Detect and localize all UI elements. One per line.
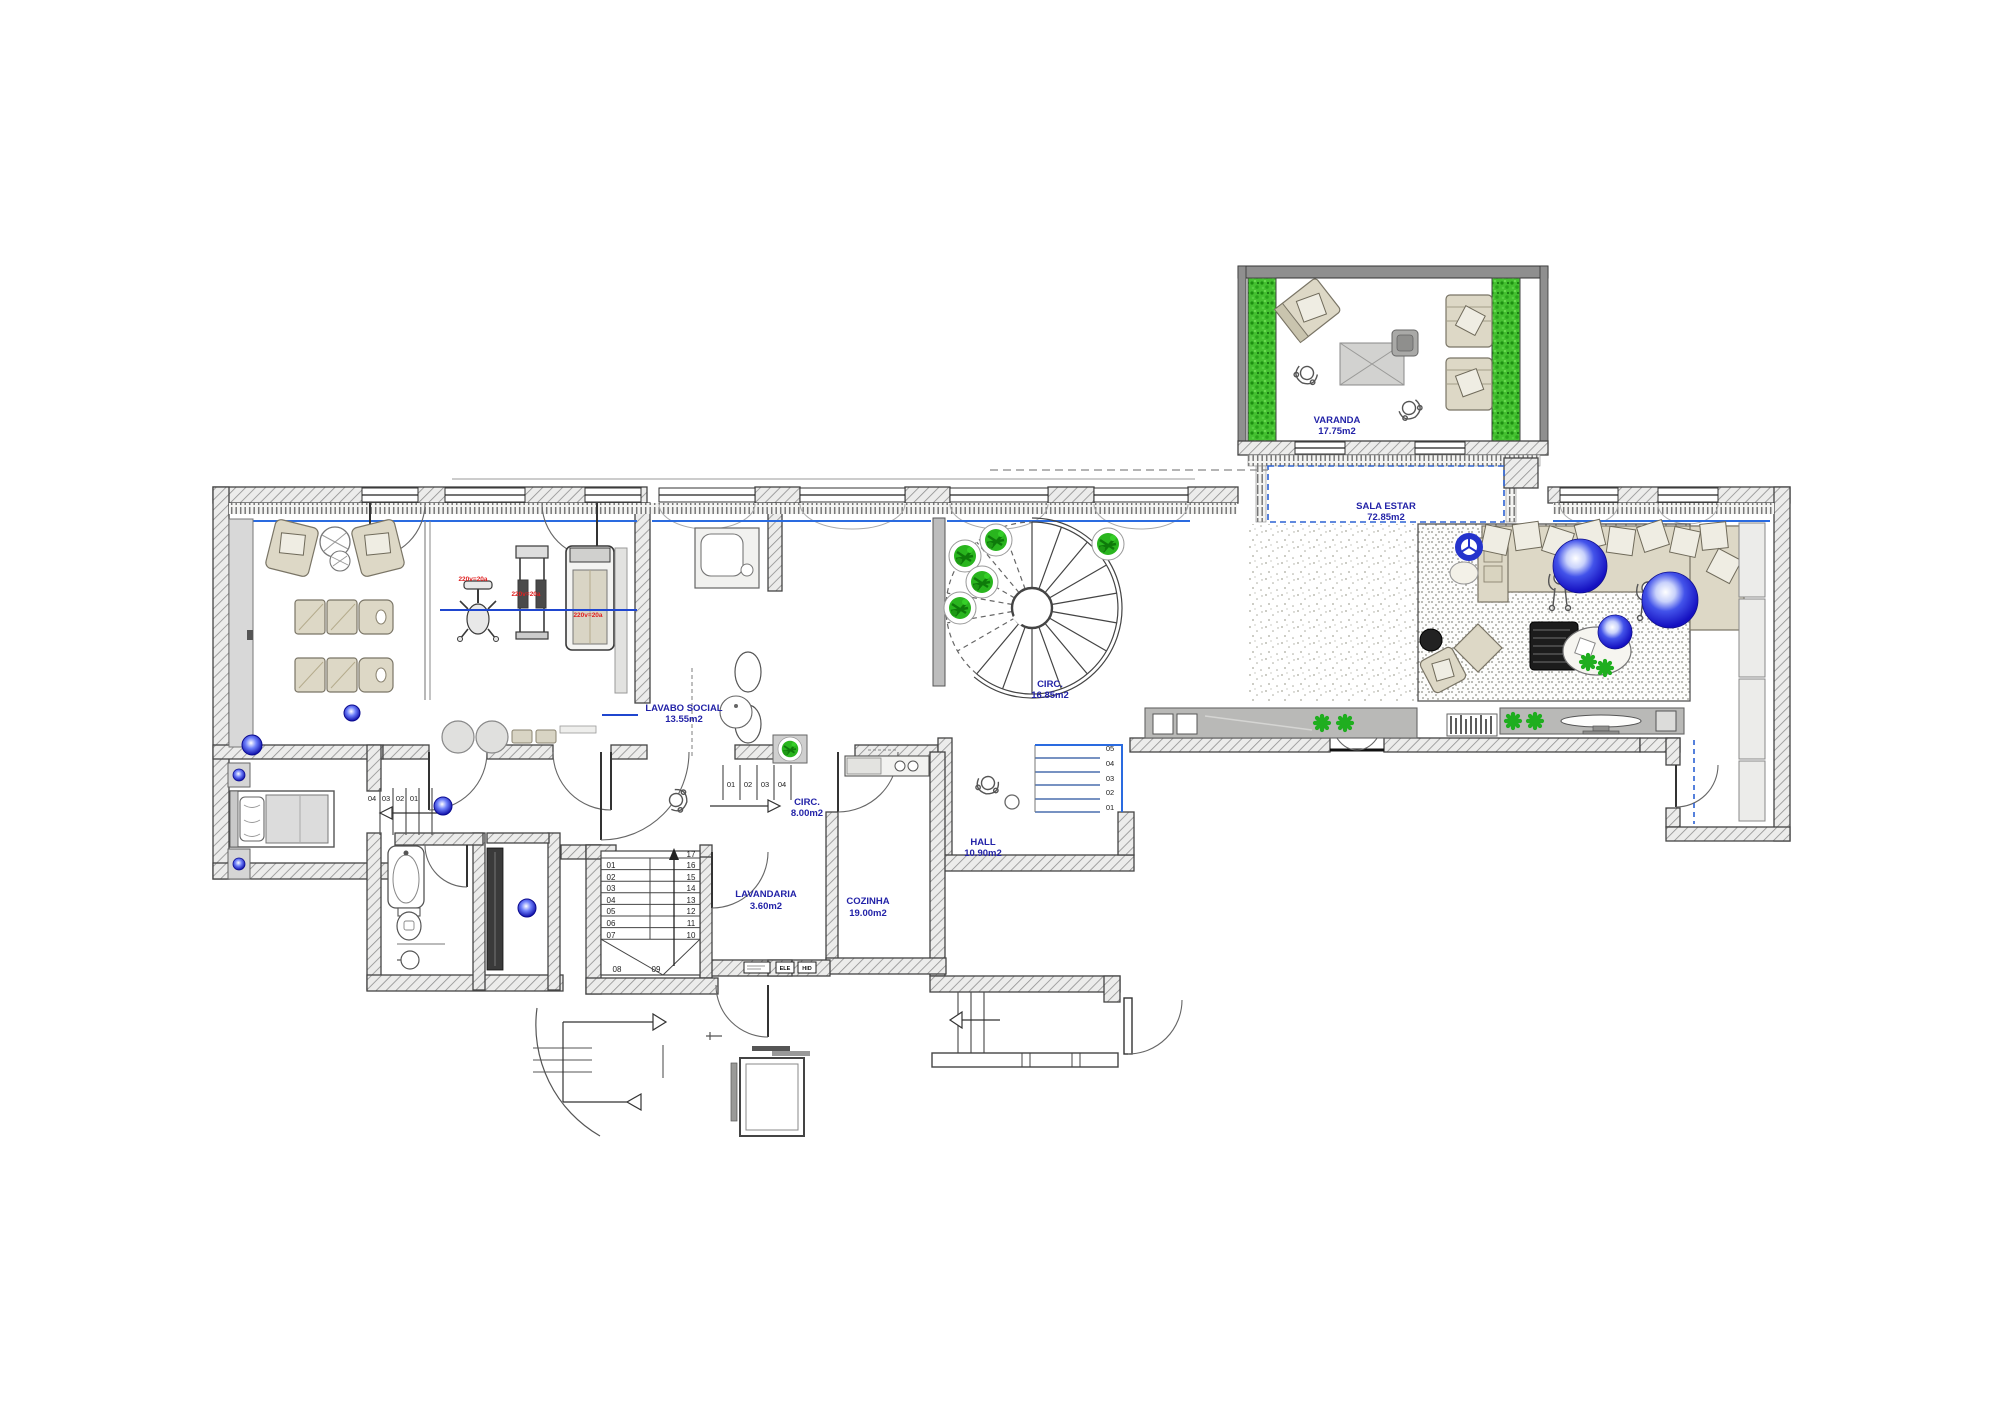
step-number: 14 — [687, 884, 696, 893]
step-number: 02 — [744, 780, 752, 789]
ceiling-light — [242, 735, 262, 755]
cabinet-handle — [247, 630, 253, 640]
curtain-band — [229, 503, 1237, 514]
blue-sphere — [1642, 572, 1698, 628]
basin-tap — [734, 704, 738, 708]
room-name: CIRC. — [794, 797, 820, 808]
floor-plan-canvas: VARANDA 17.75m2 SALA ESTAR 72.85m2 — [0, 0, 2000, 1414]
glazing-band — [1248, 455, 1540, 466]
cozinha-label: COZINHA 19.00m2 — [846, 896, 889, 919]
lamp — [233, 858, 245, 870]
toilet — [397, 908, 421, 940]
hedge-left — [1248, 278, 1276, 444]
step-number: 03 — [761, 780, 769, 789]
step-number: 08 — [613, 965, 622, 974]
step-number: 17 — [687, 850, 696, 859]
room-name: LAVABO SOCIAL — [645, 703, 722, 714]
potted-plant — [778, 737, 802, 761]
lift-cabinet — [731, 1046, 810, 1136]
bookshelf — [1447, 714, 1497, 736]
panel-label: HID — [802, 966, 812, 972]
room-area: 3.60m2 — [750, 901, 782, 912]
living-room — [1248, 519, 1744, 701]
panel-label: ELE — [780, 966, 791, 972]
room-name: HALL — [970, 837, 996, 848]
green-plant-decor — [1315, 716, 1329, 730]
room-area: 10.90m2 — [964, 848, 1002, 859]
veranda-top-wall — [1238, 266, 1548, 278]
step-number: 07 — [607, 931, 616, 940]
room-name: COZINHA — [846, 896, 889, 907]
plant — [966, 566, 998, 598]
ceiling-light — [434, 797, 452, 815]
step-number: 11 — [687, 919, 696, 928]
treadmill — [566, 546, 614, 650]
exercise-ball — [476, 721, 508, 753]
veranda-bottom-wall — [1238, 441, 1548, 455]
consoles — [1145, 708, 1684, 738]
plant — [1092, 528, 1124, 560]
room-name: CIRC. — [1037, 679, 1063, 690]
step-number: 05 — [1106, 744, 1114, 753]
green-plant-decor — [1338, 716, 1352, 730]
room-area: 17.75m2 — [1318, 426, 1356, 437]
main-staircase: 01 02 03 04 05 06 07 17 16 15 14 13 12 1… — [601, 848, 700, 975]
step-number: 04 — [778, 780, 786, 789]
step-number: 09 — [652, 965, 661, 974]
step-number: 05 — [607, 907, 616, 916]
tv — [1561, 715, 1641, 727]
ceiling-light — [344, 705, 360, 721]
voltage-label: 220v=20a — [573, 612, 602, 619]
veranda-armchair-1 — [1446, 295, 1492, 347]
step-number: 04 — [368, 794, 376, 803]
room-area: 8.00m2 — [791, 808, 823, 819]
bed — [230, 791, 334, 847]
veranda-armchair-2 — [1446, 358, 1492, 410]
step-number: 10 — [687, 931, 696, 940]
step-number: 16 — [687, 861, 696, 870]
ceiling-light — [518, 899, 536, 917]
room-area: 16.85m2 — [1031, 690, 1069, 701]
hedge-right — [1492, 278, 1520, 444]
glazing-left — [1256, 466, 1266, 522]
room-name: VARANDA — [1314, 415, 1361, 426]
step-number: 06 — [607, 919, 616, 928]
step-number: 03 — [382, 794, 390, 803]
step-number: 02 — [1106, 788, 1114, 797]
step-number: 04 — [1106, 759, 1114, 768]
step-number: 01 — [410, 794, 418, 803]
massage-bed — [295, 658, 393, 692]
curtain-band — [1553, 503, 1774, 514]
veranda-right-wall — [1540, 266, 1548, 455]
room-area: 72.85m2 — [1367, 512, 1405, 523]
wall-shelf — [615, 548, 627, 693]
green-plant-decor — [1528, 714, 1542, 728]
room-name: LAVANDARIA — [735, 889, 797, 900]
green-plant-decor — [1598, 661, 1612, 675]
room-area: 13.55m2 — [665, 714, 703, 725]
step-number: 15 — [687, 873, 696, 882]
green-plant-decor — [1506, 714, 1520, 728]
round-side-table-dark — [1420, 629, 1442, 651]
step-number: 01 — [607, 861, 616, 870]
plant — [944, 592, 976, 624]
step-number: 03 — [607, 884, 616, 893]
washbasin — [720, 696, 752, 728]
steering-ring-decor — [1458, 536, 1480, 558]
oval-pouf — [1450, 562, 1478, 584]
step-number: 02 — [396, 794, 404, 803]
shower-cabinet — [695, 528, 759, 588]
massage-bed — [295, 600, 393, 634]
pillar — [933, 518, 945, 686]
bay-pier — [1504, 458, 1538, 488]
circ-label: CIRC. 8.00m2 — [791, 797, 823, 819]
utility-panels: ELE HID — [744, 962, 816, 973]
plant — [980, 524, 1012, 556]
step-number: 03 — [1106, 774, 1114, 783]
step-number: 02 — [607, 873, 616, 882]
step-number: 12 — [687, 907, 696, 916]
blue-sphere — [1553, 539, 1607, 593]
page-background — [0, 0, 2000, 1414]
bathtub — [388, 846, 424, 908]
sideboard-left — [1145, 708, 1417, 738]
voltage-label: 220v=20a — [511, 591, 540, 598]
landing — [932, 1053, 1118, 1067]
varanda-label: VARANDA 17.75m2 — [1314, 415, 1361, 437]
step-number: 01 — [727, 780, 735, 789]
toilet — [735, 652, 761, 692]
green-plant-decor — [1581, 655, 1595, 669]
veranda-left-wall — [1238, 266, 1246, 455]
room-area: 19.00m2 — [849, 908, 887, 919]
step-number: 04 — [607, 896, 616, 905]
mat — [536, 730, 556, 743]
lamp — [233, 769, 245, 781]
blue-sphere-small — [1598, 615, 1632, 649]
voltage-label: 220v=20a — [458, 576, 487, 583]
room-name: SALA ESTAR — [1356, 501, 1416, 512]
exercise-ball — [442, 721, 474, 753]
weight-tray — [560, 726, 596, 733]
step-number: 13 — [687, 896, 696, 905]
wardrobe-column — [1739, 523, 1765, 821]
mat — [512, 730, 532, 743]
step-number: 01 — [1106, 803, 1114, 812]
